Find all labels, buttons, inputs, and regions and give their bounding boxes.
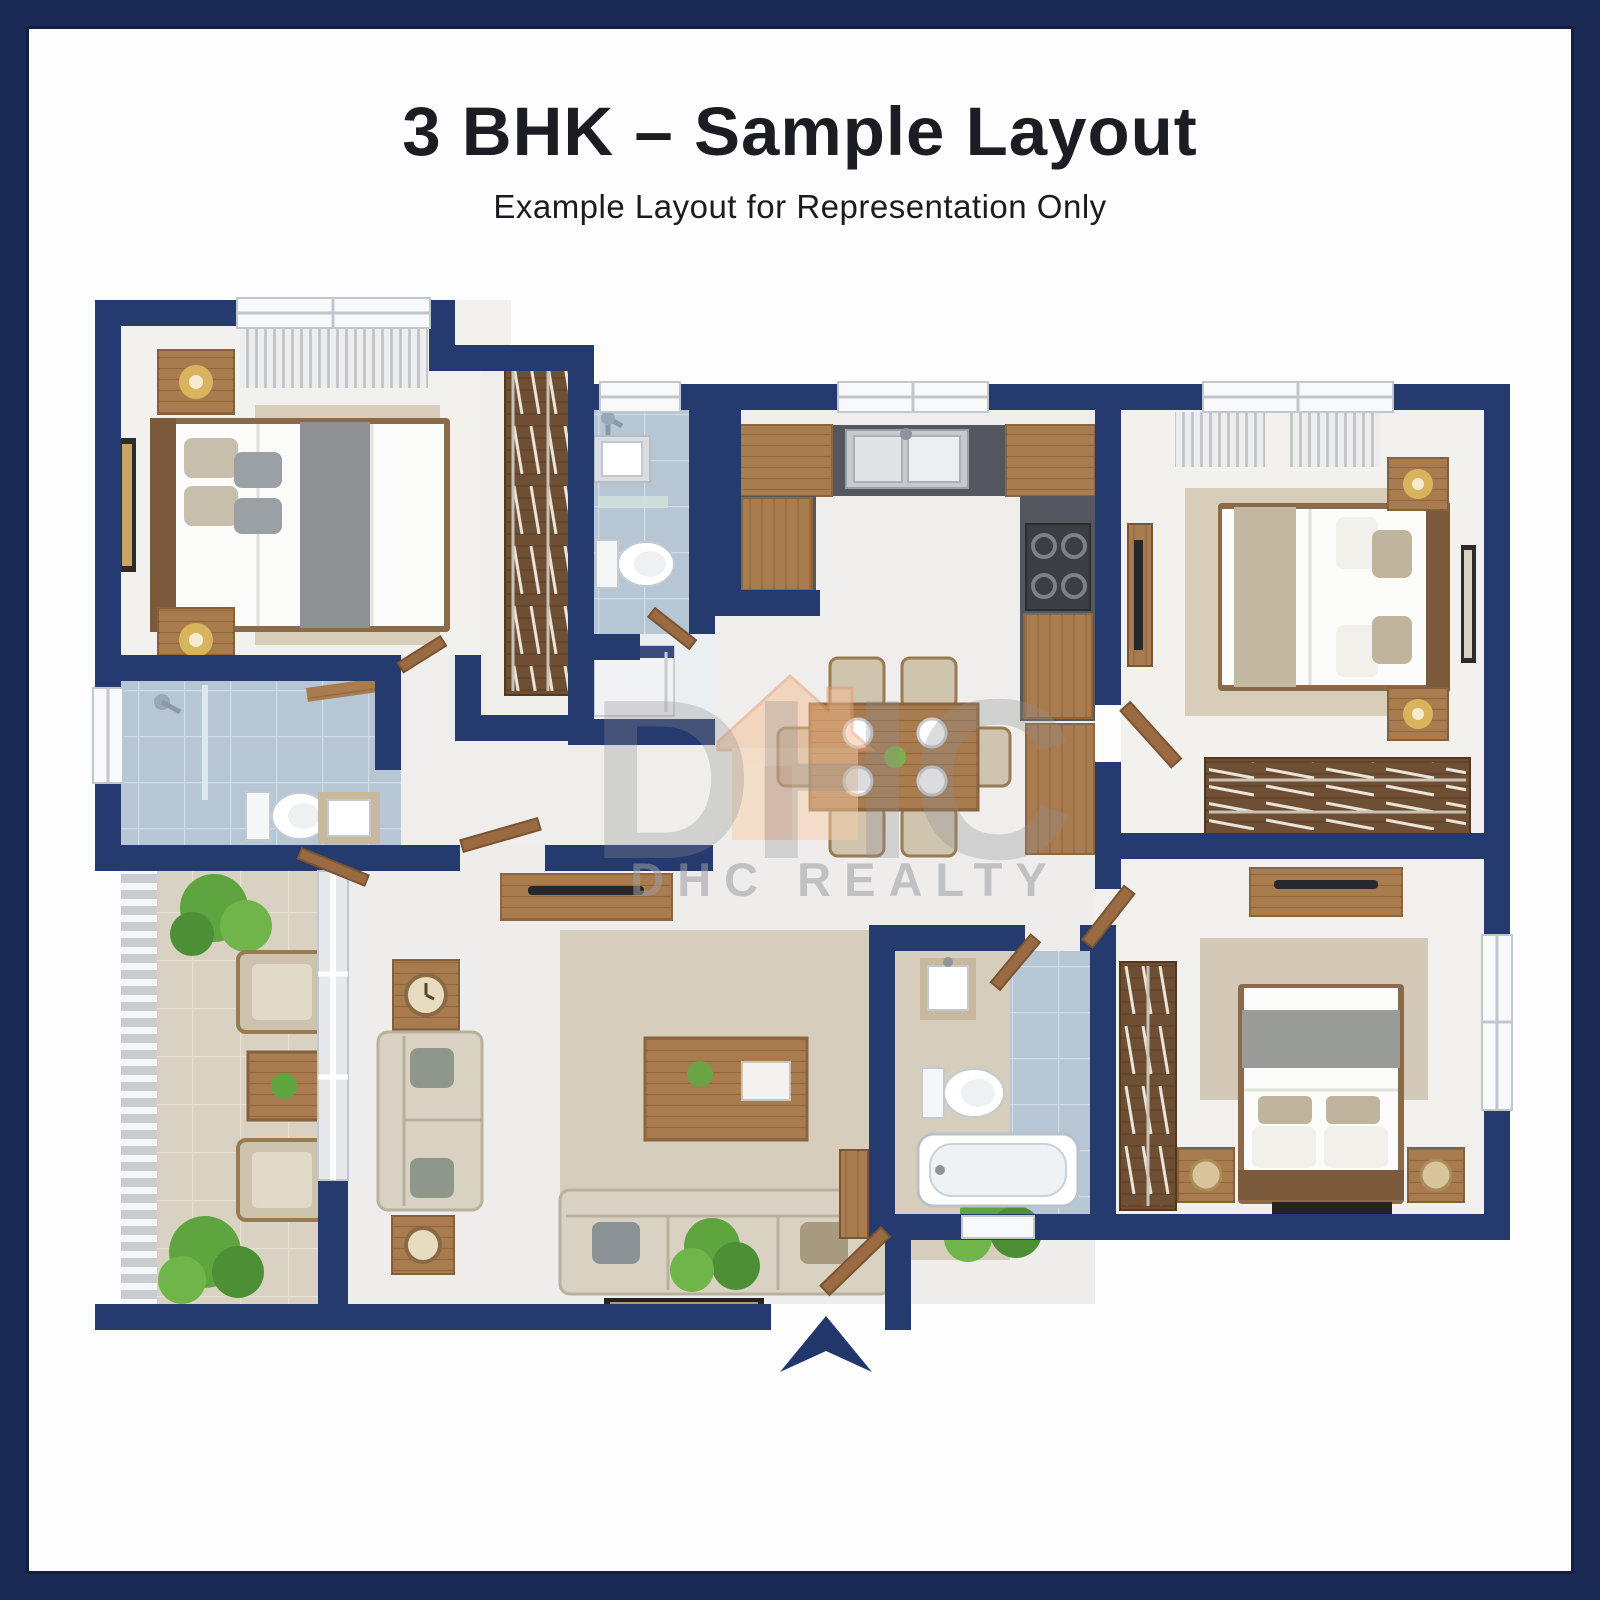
pillow: [1258, 1096, 1312, 1124]
nightstand: [1178, 1148, 1234, 1202]
bed-blanket: [300, 422, 370, 628]
pillow: [1324, 1126, 1388, 1168]
curtains-icon: [1175, 412, 1265, 467]
floorplan-page: 3 BHK – Sample Layout Example Layout for…: [0, 0, 1600, 1600]
pillow: [1372, 616, 1412, 664]
toilet: [246, 792, 328, 840]
curtains-icon: [1290, 412, 1380, 467]
side-table: [393, 960, 459, 1030]
pillow: [410, 1048, 454, 1088]
pillow: [1372, 530, 1412, 578]
kitchen-sink: [846, 428, 968, 488]
bed-blanket: [1234, 507, 1296, 687]
floorplan-drawing: DHC DHC REALTY: [0, 272, 1600, 1400]
window: [1203, 382, 1393, 412]
pillow: [184, 438, 238, 478]
pillow: [1326, 1096, 1380, 1124]
window: [600, 382, 680, 412]
pillow: [1336, 517, 1378, 569]
pillow: [1252, 1126, 1316, 1168]
wash-basin: [318, 792, 380, 844]
table-lamp-icon: [1421, 1160, 1451, 1190]
headboard: [1238, 1170, 1404, 1200]
page-title: 3 BHK – Sample Layout: [0, 92, 1600, 171]
page-subtitle: Example Layout for Representation Only: [0, 188, 1600, 226]
wash-basin: [920, 957, 976, 1020]
sofa: [378, 1032, 482, 1210]
wardrobe: [1205, 758, 1470, 834]
faucet-icon: [900, 428, 912, 440]
window: [962, 1216, 1034, 1238]
nightstand: [158, 350, 234, 414]
toilet: [922, 1068, 1004, 1118]
armchair: [238, 952, 326, 1032]
pillow: [592, 1222, 640, 1264]
faucet-icon: [935, 1165, 945, 1175]
bedroom-1: [118, 326, 591, 695]
nightstand: [1388, 688, 1448, 740]
toilet: [596, 540, 674, 588]
watermark: DHC DHC REALTY: [589, 653, 1071, 907]
glass-shelf: [598, 496, 668, 508]
outdoor-table: [248, 1052, 320, 1120]
stove: [1026, 524, 1090, 610]
table-lamp-icon: [406, 1228, 440, 1262]
pillow: [1336, 625, 1378, 677]
pillow: [184, 486, 238, 526]
shoe-cabinet: [840, 1150, 868, 1238]
wash-basin: [594, 436, 650, 482]
window-wall: [318, 871, 348, 1180]
headboard: [150, 418, 176, 632]
entrance-arrow-icon: [780, 1316, 872, 1372]
corridor-floor: [401, 655, 455, 871]
bed-blanket: [1242, 1010, 1400, 1068]
window: [1482, 935, 1512, 1110]
television-icon: [1134, 540, 1143, 650]
watermark-brand-text: DHC REALTY: [630, 853, 1059, 906]
curtains-icon: [240, 326, 428, 388]
double-bed: [1218, 503, 1450, 691]
bathtub: [918, 1134, 1078, 1206]
pillow: [234, 498, 282, 534]
coffee-table: [645, 1038, 807, 1140]
window: [838, 382, 988, 412]
nightstand: [1408, 1148, 1464, 1202]
doormat: [1272, 1202, 1392, 1214]
table-plant-icon: [687, 1061, 713, 1087]
pillow: [234, 452, 282, 488]
window: [237, 298, 430, 328]
table-lamp-icon: [1191, 1160, 1221, 1190]
side-table: [392, 1216, 454, 1274]
double-bed: [1238, 984, 1404, 1204]
double-bed: [150, 418, 450, 632]
window: [93, 688, 123, 783]
television-icon: [1274, 880, 1378, 889]
armchair: [238, 1140, 326, 1220]
table-plant-icon: [271, 1073, 297, 1099]
headboard: [1426, 503, 1450, 691]
nightstand: [1388, 458, 1448, 510]
tv-console: [1250, 868, 1402, 916]
balcony-railing: [121, 871, 157, 1304]
pillow: [410, 1158, 454, 1198]
